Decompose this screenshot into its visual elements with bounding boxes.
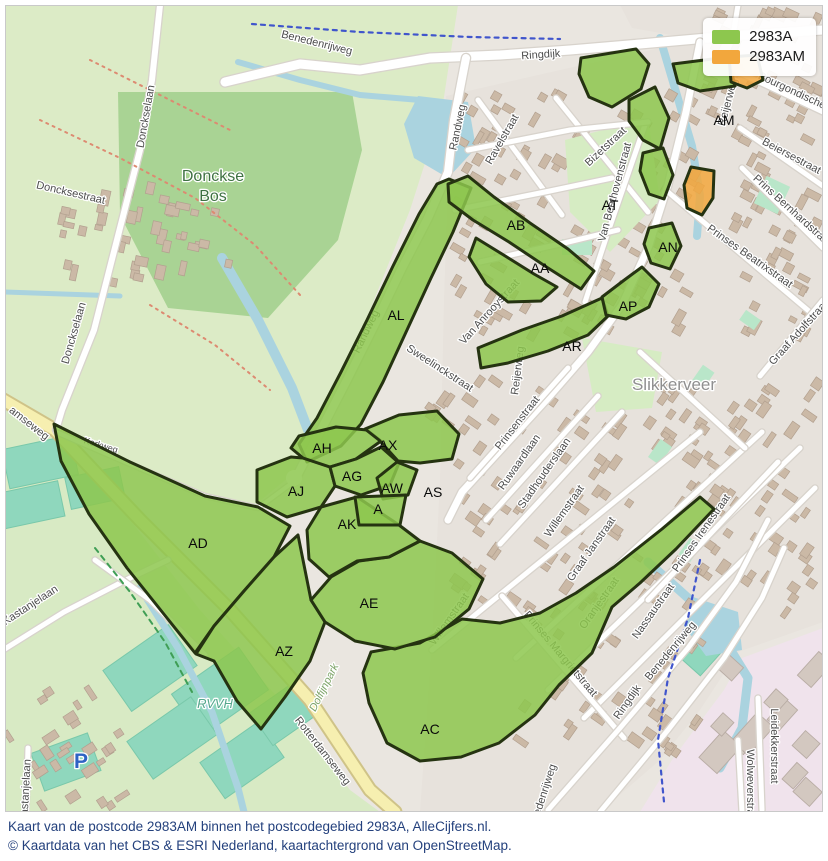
region-label-AB: AB xyxy=(507,217,526,233)
legend-label-2983A: 2983A xyxy=(749,28,792,45)
place-label: RVVH xyxy=(197,696,233,711)
region-label-AR: AR xyxy=(562,338,581,354)
region-label-AP: AP xyxy=(619,298,638,314)
street-label: Wolweverstraat xyxy=(744,749,756,815)
legend-label-2983AM: 2983AM xyxy=(749,48,805,65)
region-label-AJ: AJ xyxy=(288,483,304,499)
map-canvas[interactable]: BenedenrijwegRingdijkRandwegRandwegDonck… xyxy=(0,0,828,815)
place-label: Slikkerveer xyxy=(632,375,716,394)
place-label: P xyxy=(74,750,88,773)
street-label: Leidekkerstraat xyxy=(768,708,780,783)
map-frame: BenedenrijwegRingdijkRandwegRandwegDonck… xyxy=(0,0,828,861)
caption-line-2: © Kaartdata van het CBS & ESRI Nederland… xyxy=(8,836,820,855)
region-label-AN: AN xyxy=(658,239,677,255)
place-label: Bos xyxy=(199,188,227,205)
region-label-AD: AD xyxy=(188,535,207,551)
region-label-AM: AM xyxy=(714,112,735,128)
map-legend: 2983A 2983AM xyxy=(703,18,816,76)
region-label-AZ: AZ xyxy=(275,643,293,659)
map-layers: BenedenrijwegRingdijkRandwegRandwegDonck… xyxy=(0,5,828,815)
legend-swatch-2983A xyxy=(712,30,740,44)
legend-item-2983AM: 2983AM xyxy=(712,48,805,65)
region-label-AG: AG xyxy=(342,468,362,484)
place-label: Donckse xyxy=(182,168,244,185)
region-label-AS: AS xyxy=(424,484,443,500)
legend-item-2983A: 2983A xyxy=(712,28,805,45)
map-caption: Kaart van de postcode 2983AM binnen het … xyxy=(8,817,820,855)
region-label-AL: AL xyxy=(387,307,404,323)
region-label-AE: AE xyxy=(360,595,379,611)
region-label-A: A xyxy=(373,501,383,517)
region-label-AA: AA xyxy=(531,260,550,276)
region-label-AW: AW xyxy=(381,480,404,496)
region-label-AC: AC xyxy=(420,721,439,737)
region-label-AK: AK xyxy=(338,516,357,532)
legend-swatch-2983AM xyxy=(712,50,740,64)
region-label-AH: AH xyxy=(312,440,331,456)
caption-line-1: Kaart van de postcode 2983AM binnen het … xyxy=(8,817,820,836)
region-label-AT: AT xyxy=(602,197,619,213)
region-label-AX: AX xyxy=(379,437,398,453)
